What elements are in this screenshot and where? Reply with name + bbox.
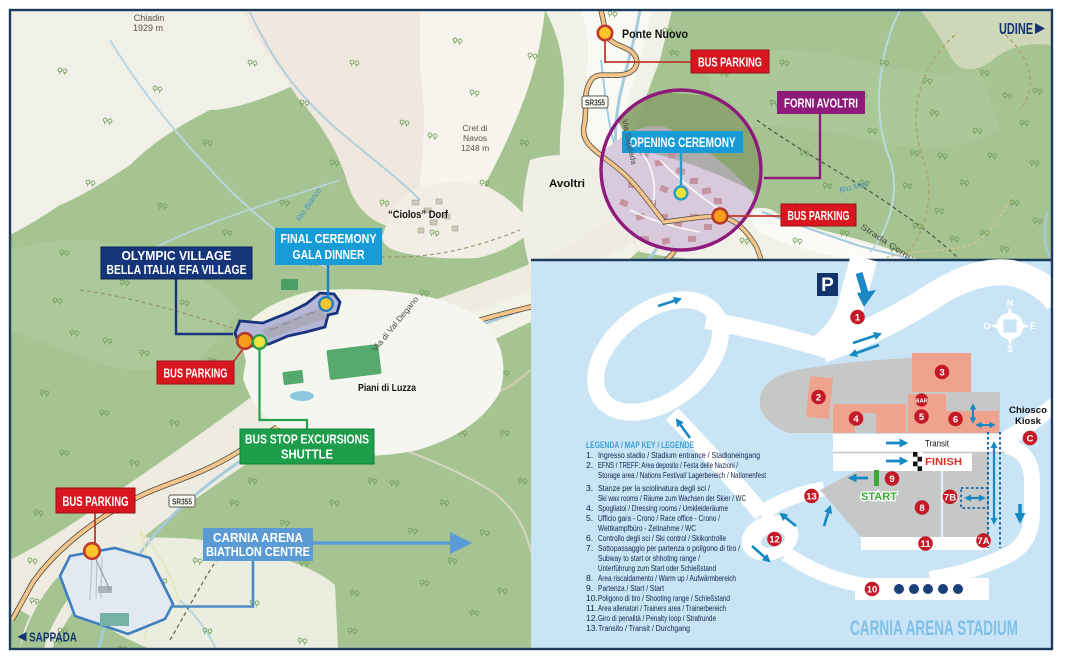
svg-text:8: 8	[919, 503, 924, 514]
svg-text:Ufficio gara - Crono / Race of: Ufficio gara - Crono / Race office - Cro…	[598, 513, 720, 523]
svg-text:8.: 8.	[586, 573, 593, 583]
svg-text:CARNIA ARENA: CARNIA ARENA	[213, 531, 303, 545]
svg-text:GALA DINNER: GALA DINNER	[293, 247, 365, 262]
svg-text:Controllo degli sci / Ski cont: Controllo degli sci / Ski control / Skik…	[598, 533, 726, 543]
svg-text:11.: 11.	[586, 603, 597, 613]
svg-text:SR355: SR355	[585, 99, 605, 108]
svg-text:4: 4	[853, 414, 859, 425]
svg-text:Ski wax rooms / Räume zum Wach: Ski wax rooms / Räume zum Wachsen der Sk…	[598, 493, 746, 503]
svg-text:Spogliatoi / Dressing rooms /: Spogliatoi / Dressing rooms / Umkleiderä…	[598, 503, 728, 513]
svg-text:Unterführung zum Start oder Sc: Unterführung zum Start oder Schießstand	[598, 563, 716, 573]
svg-text:Navos: Navos	[463, 133, 487, 143]
svg-text:E: E	[1030, 321, 1036, 331]
svg-text:Storage area / Nations Festiva: Storage area / Nations Festival/ Lagerbe…	[598, 470, 766, 480]
svg-text:P: P	[821, 275, 834, 296]
svg-text:BUS PARKING: BUS PARKING	[788, 208, 850, 223]
svg-text:Cret di: Cret di	[462, 123, 487, 133]
svg-text:EFNS / TREFF: Area deposito /: EFNS / TREFF: Area deposito / Festa dell…	[598, 460, 738, 470]
svg-text:1: 1	[855, 313, 861, 324]
svg-text:7A: 7A	[977, 536, 989, 547]
svg-text:Partenza / Start / Start: Partenza / Start / Start	[598, 583, 664, 593]
svg-text:3.: 3.	[586, 483, 593, 493]
svg-text:Kiosk: Kiosk	[1015, 416, 1042, 427]
svg-text:13: 13	[806, 492, 817, 503]
svg-text:Wettkampfbüro - Zeitnahme / WC: Wettkampfbüro - Zeitnahme / WC	[598, 523, 696, 533]
svg-text:Ingresso stadio / Stadium entr: Ingresso stadio / Stadium entrance / Sta…	[598, 450, 760, 460]
svg-text:2.: 2.	[586, 460, 593, 470]
svg-text:SAPPADA: SAPPADA	[29, 630, 77, 645]
svg-text:BELLA ITALIA EFA VILLAGE: BELLA ITALIA EFA VILLAGE	[107, 263, 247, 277]
svg-text:1.: 1.	[586, 450, 593, 460]
svg-text:7.: 7.	[586, 543, 593, 553]
svg-text:6: 6	[953, 415, 958, 426]
svg-text:FINISH: FINISH	[925, 457, 962, 468]
svg-text:Subway to start or shhoting ra: Subway to start or shhoting range /	[598, 553, 700, 563]
svg-text:11: 11	[920, 539, 931, 550]
svg-text:Sottopassaggio per partenza o: Sottopassaggio per partenza o poligono d…	[598, 543, 740, 553]
svg-text:Area riscaldamento / Warm up /: Area riscaldamento / Warm up / Aufwärmbe…	[598, 573, 736, 583]
svg-text:Chiosco: Chiosco	[1009, 405, 1047, 416]
svg-text:2: 2	[816, 393, 821, 404]
svg-text:OPENING CEREMONY: OPENING CEREMONY	[630, 135, 736, 150]
svg-text:6.: 6.	[586, 533, 593, 543]
svg-text:12: 12	[769, 535, 780, 546]
svg-text:S: S	[1007, 344, 1013, 354]
svg-text:Transit: Transit	[925, 439, 949, 450]
svg-text:O: O	[983, 321, 990, 331]
svg-text:3: 3	[939, 368, 944, 379]
svg-text:Transito / Transit / Durchgang: Transito / Transit / Durchgang	[598, 623, 690, 633]
svg-text:13.: 13.	[586, 623, 598, 633]
svg-text:Ponte Nuovo: Ponte Nuovo	[622, 27, 688, 41]
svg-text:7B: 7B	[944, 492, 956, 503]
svg-text:Stanze per la sciolinatura deg: Stanze per la sciolinatura degli sci /	[598, 483, 710, 493]
svg-text:10.: 10.	[586, 593, 598, 603]
svg-text:N: N	[1007, 298, 1014, 308]
svg-text:CARNIA ARENA STADIUM: CARNIA ARENA STADIUM	[850, 617, 1018, 640]
svg-text:BUS STOP EXCURSIONS: BUS STOP EXCURSIONS	[245, 432, 369, 447]
svg-text:Poligono di tiro / Shooting ra: Poligono di tiro / Shooting range / Schi…	[598, 593, 730, 603]
svg-text:5.: 5.	[586, 513, 593, 523]
svg-text:UDINE: UDINE	[999, 21, 1033, 38]
svg-text:SR355: SR355	[172, 498, 192, 507]
svg-text:START: START	[861, 491, 897, 503]
svg-text:FINAL CEREMONY: FINAL CEREMONY	[281, 231, 377, 246]
svg-text:12.: 12.	[586, 613, 598, 623]
svg-text:C: C	[1027, 434, 1034, 445]
svg-text:Area allenatori / Trainers are: Area allenatori / Trainers area / Traine…	[598, 603, 726, 613]
svg-text:SHUTTLE: SHUTTLE	[281, 447, 333, 462]
svg-text:BUS PARKING: BUS PARKING	[63, 493, 129, 509]
svg-text:BUS PARKING: BUS PARKING	[164, 366, 228, 381]
svg-text:9: 9	[889, 474, 894, 485]
svg-text:4.: 4.	[586, 503, 593, 513]
svg-text:BUS PARKING: BUS PARKING	[698, 55, 762, 70]
svg-text:OLYMPIC VILLAGE: OLYMPIC VILLAGE	[122, 249, 232, 263]
svg-text:BAR: BAR	[915, 399, 928, 405]
svg-text:1929 m: 1929 m	[133, 23, 163, 33]
svg-text:BIATHLON CENTRE: BIATHLON CENTRE	[206, 545, 310, 559]
svg-text:Giro di penalità / Penalty loo: Giro di penalità / Penalty loop / Strafr…	[598, 613, 716, 623]
svg-text:Chiadin: Chiadin	[134, 13, 165, 23]
svg-text:Avoltri: Avoltri	[549, 178, 585, 190]
svg-text:10: 10	[867, 585, 878, 596]
svg-text:1248 m: 1248 m	[461, 143, 489, 153]
svg-text:“Ciolos” Dorf: “Ciolos” Dorf	[388, 209, 448, 221]
svg-text:5: 5	[919, 412, 925, 423]
svg-text:FORNI AVOLTRI: FORNI AVOLTRI	[784, 96, 858, 111]
svg-text:9.: 9.	[586, 583, 593, 593]
svg-text:Piani di Luzza: Piani di Luzza	[358, 382, 416, 394]
